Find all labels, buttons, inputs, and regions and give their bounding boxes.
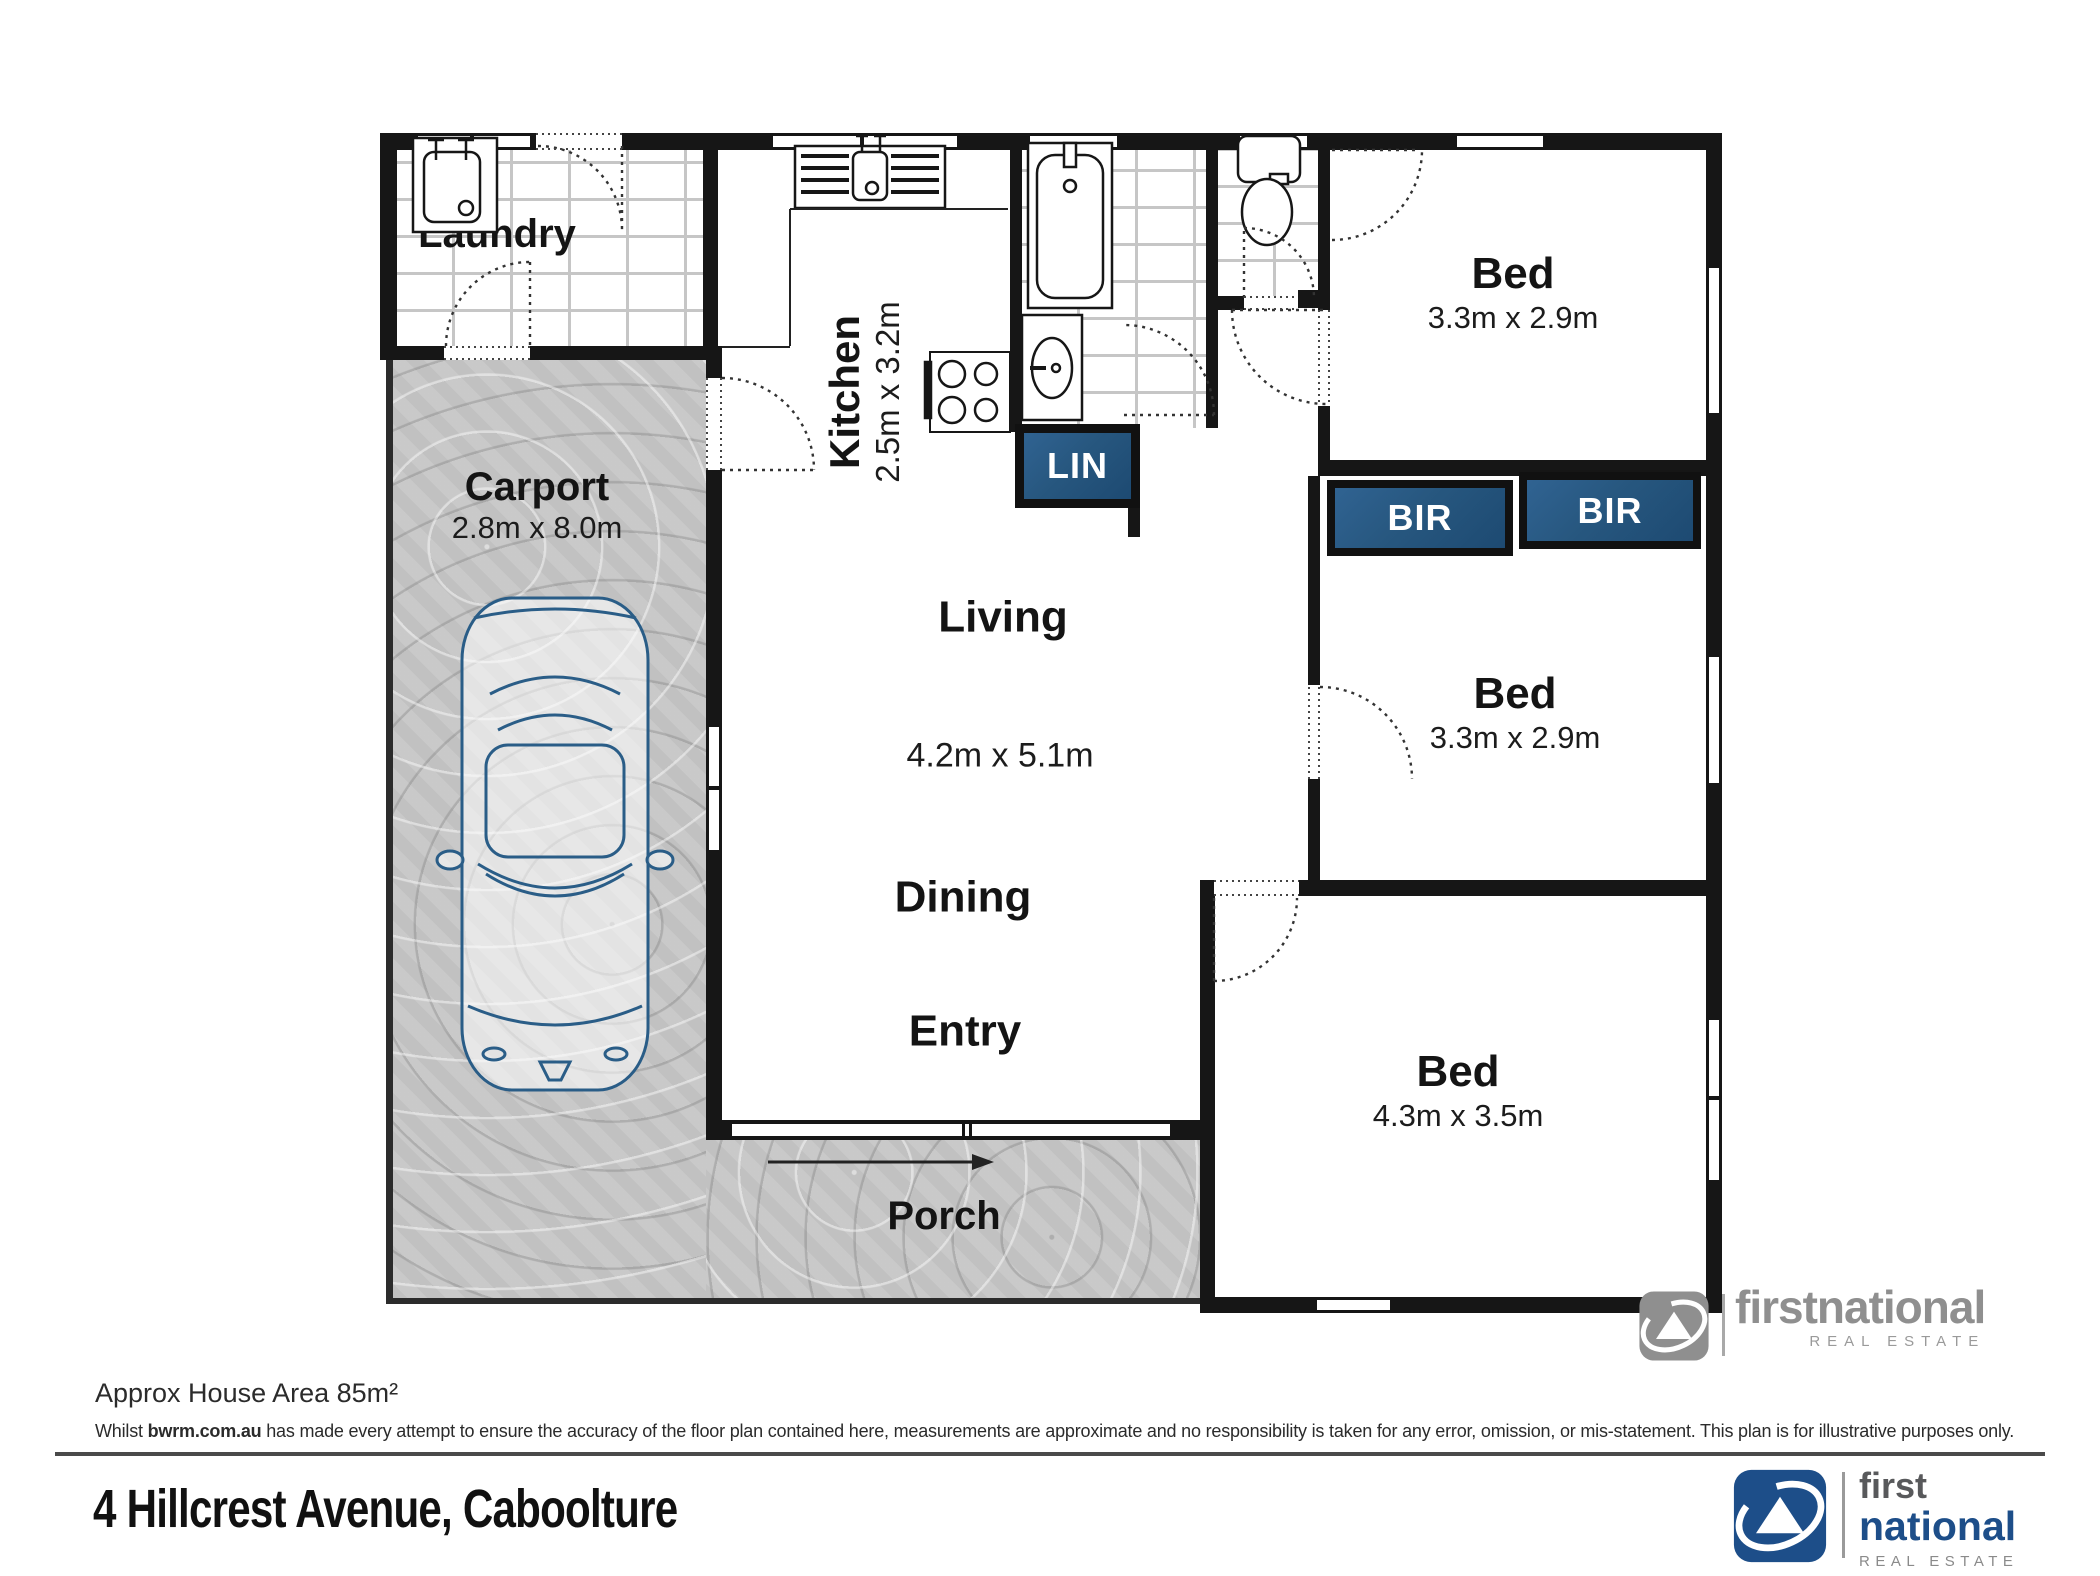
footer-divider xyxy=(55,1452,2045,1456)
watermark-logo: firstnational REAL ESTATE xyxy=(1638,1284,1985,1362)
carport-name: Carport xyxy=(452,464,623,510)
bed1-name: Bed xyxy=(1428,249,1599,300)
bed3-side-window-mullion xyxy=(1706,1096,1722,1100)
logo-tagline: REAL ESTATE xyxy=(1859,1554,2018,1569)
bathroom-floor xyxy=(1022,143,1206,428)
watermark-divider xyxy=(1722,1294,1725,1356)
living-dims-label: 4.2m x 5.1m xyxy=(906,736,1093,775)
bed3-door-gap xyxy=(1214,880,1299,896)
wc-door-gap xyxy=(1244,296,1298,310)
wall-laundry-right xyxy=(703,133,718,346)
carport-label: Carport 2.8m x 8.0m xyxy=(452,464,623,546)
wall-kitchen-bathroom xyxy=(1010,133,1022,432)
logo-national: national xyxy=(1859,1506,2018,1547)
dining-label: Dining xyxy=(895,873,1032,924)
property-address: 4 Hillcrest Avenue, Caboolture xyxy=(93,1478,677,1540)
laundry-name: Laundry xyxy=(418,211,576,257)
wall-wc-bottom xyxy=(1218,296,1244,310)
bed2-dims: 3.3m x 2.9m xyxy=(1430,719,1601,755)
bed3-name: Bed xyxy=(1373,1047,1544,1098)
disclaimer: Whilst bwrm.com.au has made every attemp… xyxy=(95,1421,2045,1442)
laundry-window-mullion xyxy=(470,133,474,150)
porch-name: Porch xyxy=(887,1193,1000,1239)
watermark-first: first xyxy=(1735,1281,1817,1333)
bathroom-window xyxy=(1030,133,1117,150)
logo-text: first national REAL ESTATE xyxy=(1859,1468,2018,1569)
logo-divider xyxy=(1842,1472,1845,1558)
kitchen-window xyxy=(773,133,957,150)
bed3-label: Bed 4.3m x 3.5m xyxy=(1373,1047,1544,1133)
logo-first: first xyxy=(1859,1468,2018,1504)
bed1-label: Bed 3.3m x 2.9m xyxy=(1428,249,1599,335)
laundry-window xyxy=(418,133,530,150)
kitchen-dims: 2.5m x 3.2m xyxy=(869,301,907,483)
bed3-bottom-window xyxy=(1317,1297,1390,1313)
bir-closet-right: BIR xyxy=(1519,472,1701,549)
bed1-top-window xyxy=(1457,133,1543,150)
bed1-side-window xyxy=(1706,268,1722,413)
bed1-dims: 3.3m x 2.9m xyxy=(1428,299,1599,335)
first-national-logo-icon xyxy=(1732,1468,1828,1564)
linen-closet-label: LIN xyxy=(1047,445,1108,487)
entry-name: Entry xyxy=(909,1007,1021,1058)
bed1-hall-door-arc xyxy=(1232,310,1326,404)
laundry-carport-door-gap xyxy=(444,346,530,360)
first-national-logo: first national REAL ESTATE xyxy=(1732,1468,2018,1569)
area-note: Approx House Area 85m² xyxy=(95,1378,398,1409)
carport-edge-left xyxy=(386,358,393,1304)
watermark-tagline: REAL ESTATE xyxy=(1735,1334,1985,1349)
stove-icon xyxy=(925,352,1010,432)
wall-laundry-bottom xyxy=(380,346,706,360)
kitchen-label: Kitchen 2.5m x 3.2m xyxy=(821,301,907,483)
porch-label: Porch xyxy=(887,1193,1000,1239)
bed2-door-gap xyxy=(1308,685,1320,779)
floorplan-page: LIN BIR BIR Laundry Carport 2.8m x 8.0m … xyxy=(0,0,2100,1576)
sliding-door-meet-1 xyxy=(962,1123,965,1137)
entry-label: Entry xyxy=(909,1007,1021,1058)
disclaimer-rest: has made every attempt to ensure the acc… xyxy=(261,1421,2014,1441)
wall-lin-stub xyxy=(1128,505,1140,537)
linen-closet: LIN xyxy=(1015,424,1140,508)
bed2-side-window xyxy=(1706,657,1722,783)
living-name: Living xyxy=(938,593,1068,644)
watermark-text: firstnational REAL ESTATE xyxy=(1735,1284,1985,1349)
porch-edge-bottom xyxy=(386,1298,1206,1304)
bed3-door-arc xyxy=(1214,898,1297,981)
bed2-name: Bed xyxy=(1430,669,1601,720)
wc-window xyxy=(1240,133,1307,150)
disclaimer-prefix: Whilst xyxy=(95,1421,148,1441)
kitchen-name: Kitchen xyxy=(821,315,869,469)
dining-name: Dining xyxy=(895,873,1032,924)
living-dims: 4.2m x 5.1m xyxy=(906,736,1093,775)
wall-laundry-left xyxy=(380,133,397,358)
kitchen-window-mullion xyxy=(860,133,864,150)
wall-bed3-left xyxy=(1200,880,1215,1313)
bed3-side-window xyxy=(1706,1020,1722,1180)
bed2-door-arc xyxy=(1320,687,1412,779)
bir-left-label: BIR xyxy=(1388,497,1453,539)
entry-sliding-door xyxy=(730,1122,1172,1138)
living-window-mullion xyxy=(706,786,722,790)
kitchen-door-arc xyxy=(722,378,814,470)
kitchen-door-gap xyxy=(706,378,722,470)
wall-wc-nub xyxy=(1298,290,1320,308)
bir-right-label: BIR xyxy=(1578,490,1643,532)
watermark-national: national xyxy=(1817,1281,1985,1333)
bed1-door-arc xyxy=(1332,150,1422,240)
sliding-door-meet-2 xyxy=(969,1123,972,1137)
wall-bed2-left xyxy=(1308,476,1320,888)
wall-bathroom-wc xyxy=(1206,133,1218,428)
bir-closet-left: BIR xyxy=(1327,480,1513,556)
first-national-watermark-icon xyxy=(1638,1290,1710,1362)
laundry-label: Laundry xyxy=(418,211,576,257)
disclaimer-site: bwrm.com.au xyxy=(148,1421,262,1441)
wc-floor xyxy=(1218,143,1318,296)
laundry-exterior-door-gap xyxy=(536,133,622,150)
bed3-dims: 4.3m x 3.5m xyxy=(1373,1097,1544,1133)
bed2-label: Bed 3.3m x 2.9m xyxy=(1430,669,1601,755)
bed1-door-gap xyxy=(1318,310,1330,406)
wall-bed1-left xyxy=(1318,133,1330,476)
living-label: Living xyxy=(938,593,1068,644)
carport-dims: 2.8m x 8.0m xyxy=(452,510,623,546)
